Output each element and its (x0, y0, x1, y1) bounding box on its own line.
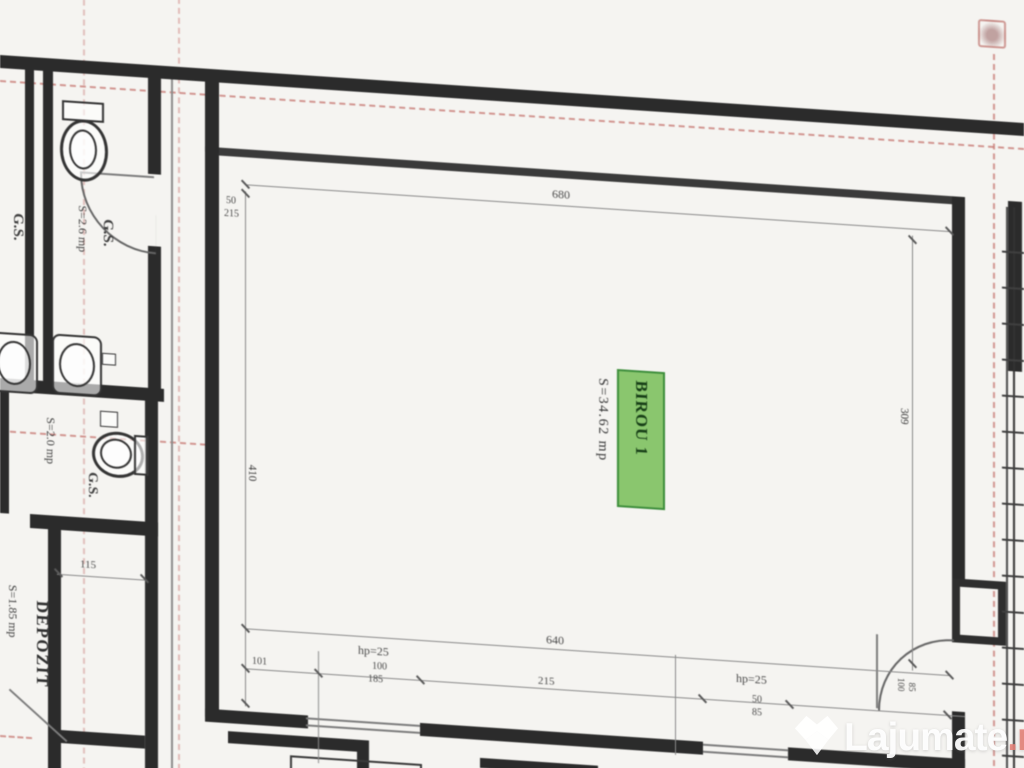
watermark-brand: Lajumate (844, 716, 1007, 759)
watermark-logo-icon (792, 713, 840, 764)
grid-line-vertical-b (178, 0, 180, 768)
wall (148, 76, 161, 175)
dimension-line (245, 628, 950, 676)
watermark: Lajumate.ro (792, 708, 1024, 768)
dim-corner-b: 215 (224, 208, 239, 220)
room-area-gs-lower: S=2.0 mp (43, 417, 58, 465)
dim-window2-parapet: hp=25 (736, 671, 767, 688)
grid-axis-marker (978, 19, 1006, 49)
wall (228, 731, 358, 752)
wall (205, 709, 308, 729)
dim-window2-a: 50 (752, 694, 762, 706)
extension-line (318, 651, 319, 763)
extension-line (675, 655, 676, 755)
room-label-gs-lower: G.S. (84, 472, 100, 499)
wall (57, 730, 145, 749)
room-label-gs-top: G.S. (99, 219, 116, 248)
wall (219, 148, 959, 205)
wall (205, 147, 219, 718)
wall (205, 80, 219, 153)
dim-segment-101: 101 (252, 656, 267, 668)
wall (420, 723, 703, 755)
dim-window1-parapet: hp=25 (358, 643, 389, 660)
extension-line (171, 79, 173, 768)
dim-window2-b: 85 (752, 707, 762, 719)
dimension-line (912, 236, 913, 671)
dim-hall-width: 115 (80, 558, 96, 571)
dimension-line (57, 574, 145, 581)
window-line (703, 744, 788, 752)
room-label-birou: BIROU 1 (631, 380, 651, 457)
room-area-depozit: S=1.85 mp (5, 584, 20, 638)
room-label-depozit: DEPOZIT (32, 600, 52, 688)
dim-window1-b: 185 (368, 673, 383, 685)
wall (952, 196, 965, 579)
dim-door-b: 85 (907, 682, 917, 692)
dim-bottom-width: 640 (546, 632, 564, 648)
wall (148, 246, 161, 402)
door-arc (80, 173, 156, 254)
room-area-gs-top: S=2.6 mp (75, 205, 90, 253)
dim-corner-a: 50 (226, 195, 236, 207)
dim-left-height: 410 (246, 464, 258, 481)
watermark-tld: .ro (1007, 716, 1024, 759)
dim-door-a: 100 (896, 678, 906, 692)
wall-hatching (1002, 217, 1024, 763)
shaft-wall (952, 578, 1006, 646)
room-highlight-birou: BIROU 1 (617, 369, 665, 510)
toilet-tank-symbol (134, 435, 148, 476)
dim-segment-215: 215 (538, 675, 555, 688)
floor-plan-photo: BIROU 1 S=34.62 mp G.S. S=2.6 mp G.S. G.… (0, 0, 1024, 768)
wall-fixture (102, 353, 116, 366)
dim-right-height: 309 (898, 408, 910, 425)
room-label-gs-side: G.S. (9, 213, 26, 242)
adjacent-room-outline (290, 755, 422, 768)
grid-line-vertical-right (993, 54, 995, 766)
grid-line-horizontal-bottom (0, 735, 32, 739)
dim-top-width: 680 (552, 187, 570, 203)
room-area-birou: S=34.62 mp (594, 377, 610, 462)
wall-fixture (100, 411, 118, 428)
floor-plan: BIROU 1 S=34.62 mp G.S. S=2.6 mp G.S. G.… (0, 0, 1024, 768)
dim-window1-a: 100 (372, 661, 387, 673)
window-line (703, 751, 788, 759)
wall (480, 758, 598, 768)
wall (0, 391, 9, 514)
